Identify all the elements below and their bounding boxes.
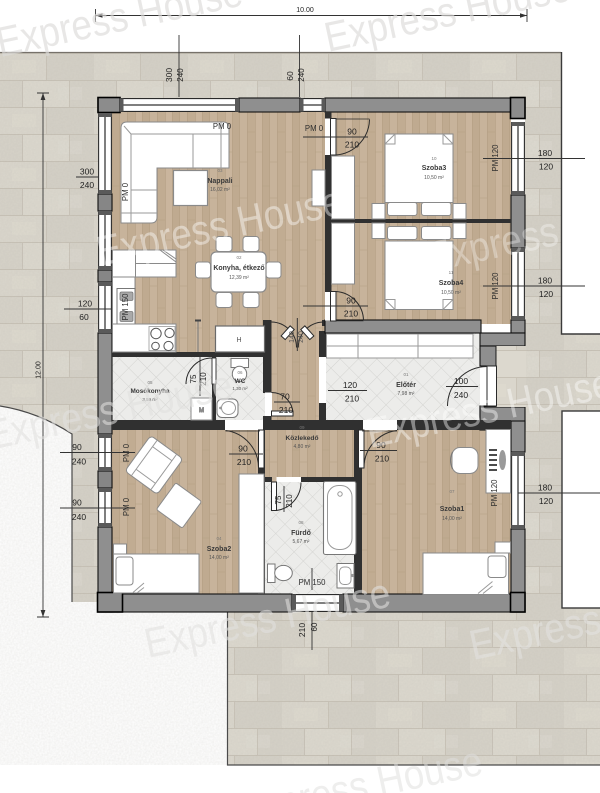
svg-text:01: 01 <box>403 372 409 377</box>
svg-text:4,80 m²: 4,80 m² <box>294 444 311 450</box>
svg-text:PM 150: PM 150 <box>121 293 130 321</box>
svg-text:90: 90 <box>238 444 248 454</box>
svg-text:240: 240 <box>298 331 305 343</box>
svg-text:12,39 m²: 12,39 m² <box>229 275 249 281</box>
svg-text:PM 0: PM 0 <box>213 122 232 131</box>
svg-text:Nappali: Nappali <box>207 178 232 185</box>
svg-text:10.00: 10.00 <box>296 7 314 14</box>
svg-text:10,50 m²: 10,50 m² <box>424 175 444 181</box>
svg-text:12.00: 12.00 <box>36 361 43 379</box>
svg-text:PM 120: PM 120 <box>491 272 500 300</box>
svg-text:210: 210 <box>279 405 293 415</box>
svg-text:02: 02 <box>236 255 242 260</box>
svg-text:180: 180 <box>538 148 552 158</box>
svg-text:PM 0: PM 0 <box>122 497 131 516</box>
svg-text:90: 90 <box>72 442 82 452</box>
svg-text:Szoba3: Szoba3 <box>422 165 447 172</box>
svg-text:300: 300 <box>80 167 94 177</box>
svg-text:100: 100 <box>454 376 468 386</box>
svg-text:WC: WC <box>235 378 246 385</box>
svg-text:10,50 m²: 10,50 m² <box>441 290 461 296</box>
svg-text:90: 90 <box>346 296 356 306</box>
svg-text:Szoba1: Szoba1 <box>440 506 465 513</box>
svg-text:14,00 m²: 14,00 m² <box>209 555 229 561</box>
svg-text:140: 140 <box>289 331 296 343</box>
svg-text:210: 210 <box>285 494 294 508</box>
svg-text:Előtér: Előtér <box>396 382 416 389</box>
svg-text:Szoba4: Szoba4 <box>439 280 464 287</box>
svg-text:Szoba2: Szoba2 <box>207 546 232 553</box>
svg-text:H: H <box>236 337 241 344</box>
svg-text:70: 70 <box>280 392 290 402</box>
svg-text:04: 04 <box>216 536 222 541</box>
svg-text:180: 180 <box>538 276 552 286</box>
svg-text:210: 210 <box>344 309 358 319</box>
svg-text:300: 300 <box>164 68 174 82</box>
svg-text:16,02 m²: 16,02 m² <box>210 187 230 193</box>
svg-text:7,98 m²: 7,98 m² <box>398 391 415 397</box>
svg-text:210: 210 <box>345 394 359 404</box>
svg-text:210: 210 <box>345 140 359 150</box>
svg-text:240: 240 <box>297 68 306 82</box>
svg-text:09: 09 <box>299 425 305 430</box>
svg-text:240: 240 <box>72 512 86 522</box>
svg-text:PM 0: PM 0 <box>121 182 130 201</box>
svg-text:14,00 m²: 14,00 m² <box>442 516 462 522</box>
svg-text:120: 120 <box>343 380 357 390</box>
svg-text:PM 120: PM 120 <box>490 479 499 507</box>
svg-text:PM 0: PM 0 <box>122 443 131 462</box>
svg-text:75: 75 <box>274 495 283 504</box>
svg-text:Fürdő: Fürdő <box>291 530 311 537</box>
svg-text:06: 06 <box>237 370 243 375</box>
svg-text:180: 180 <box>538 483 552 493</box>
svg-text:120: 120 <box>539 162 553 172</box>
svg-text:90: 90 <box>72 498 82 508</box>
svg-text:90: 90 <box>347 127 357 137</box>
svg-text:210: 210 <box>237 457 251 467</box>
svg-text:PM 0: PM 0 <box>305 124 324 133</box>
svg-text:5,67 m²: 5,67 m² <box>293 539 310 545</box>
svg-text:10: 10 <box>431 156 437 161</box>
svg-text:PM 120: PM 120 <box>491 144 500 172</box>
svg-text:240: 240 <box>80 180 94 190</box>
svg-text:60: 60 <box>79 312 89 322</box>
svg-text:07: 07 <box>449 489 455 494</box>
svg-text:Közlekedő: Közlekedő <box>286 435 319 442</box>
svg-text:240: 240 <box>176 68 185 82</box>
svg-text:240: 240 <box>72 457 86 467</box>
svg-text:1,30 m²: 1,30 m² <box>232 386 248 391</box>
svg-text:120: 120 <box>78 299 92 309</box>
svg-text:Konyha, étkező: Konyha, étkező <box>213 265 264 272</box>
svg-text:60: 60 <box>285 71 295 81</box>
svg-text:08: 08 <box>298 520 304 525</box>
svg-text:03: 03 <box>217 168 223 173</box>
svg-text:120: 120 <box>539 496 553 506</box>
svg-text:120: 120 <box>539 289 553 299</box>
